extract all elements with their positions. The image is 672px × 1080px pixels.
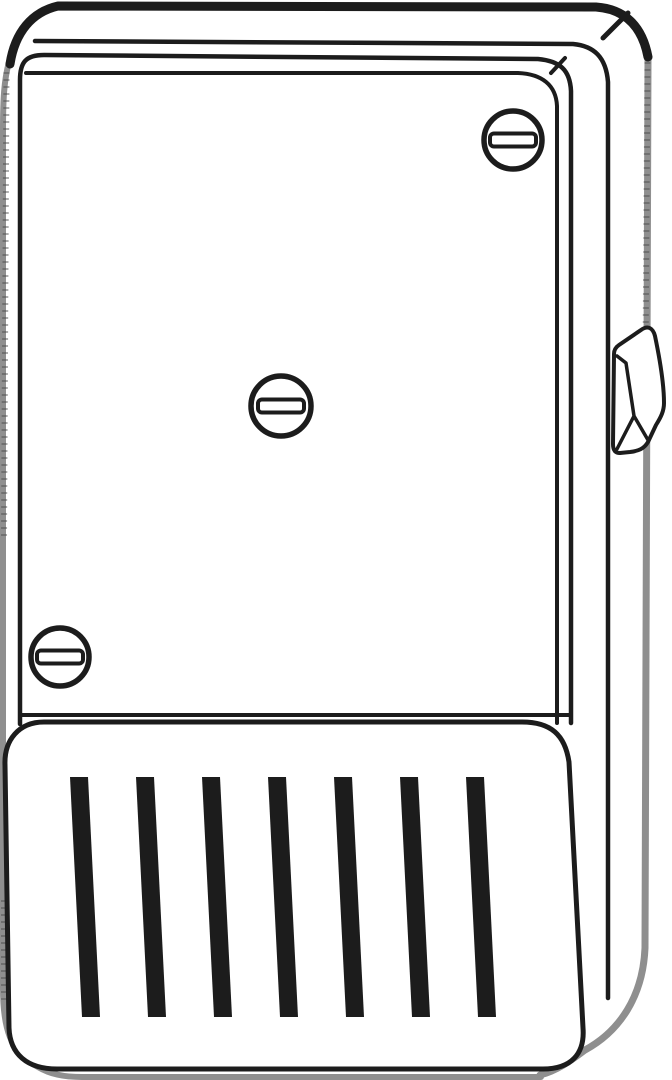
screw-slot xyxy=(37,651,83,664)
lever-body xyxy=(613,328,664,453)
corner-chamfer-mark xyxy=(603,13,628,38)
figure-stage xyxy=(0,0,672,1080)
vent-cover xyxy=(5,722,583,1069)
screw-slot xyxy=(258,400,304,413)
front-door xyxy=(20,55,571,724)
enclosure-illustration xyxy=(0,0,672,1080)
slotted-screw xyxy=(484,111,542,169)
slotted-screw xyxy=(31,628,89,686)
side-lever xyxy=(613,328,664,453)
screw-slot xyxy=(490,134,536,147)
slotted-screw xyxy=(251,376,311,436)
door-screws xyxy=(31,111,542,686)
